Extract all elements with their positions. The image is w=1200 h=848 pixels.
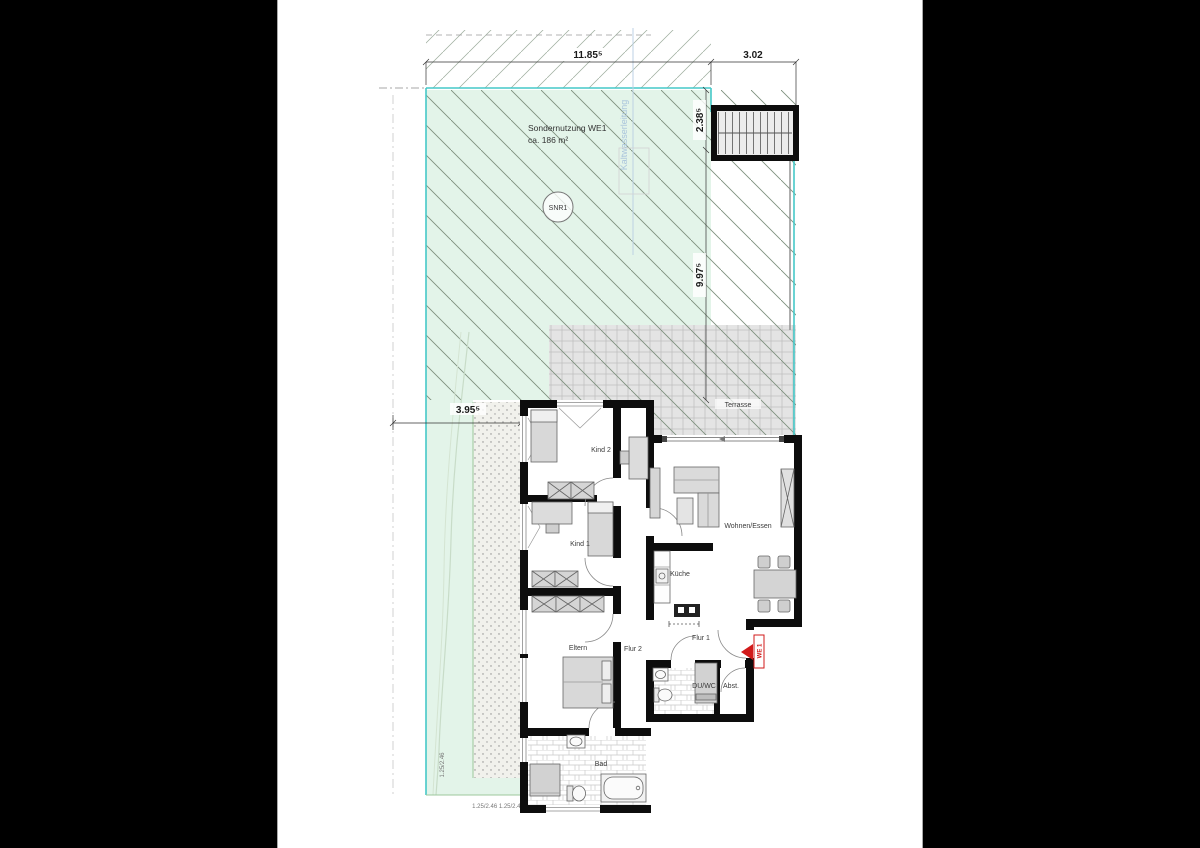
window-note-vertical: 1.25/2.46 xyxy=(440,752,446,778)
exterior-stairs xyxy=(714,108,796,158)
label-flur2: Flur 2 xyxy=(624,646,642,653)
terrasse-label: Terrasse xyxy=(725,402,752,409)
label-bad: Bad xyxy=(595,761,608,768)
window-bad-left xyxy=(520,738,528,762)
label-flur1: Flur 1 xyxy=(692,635,710,642)
label-duwc: DU/WC xyxy=(692,683,716,690)
dim-right-lower: 9.97⁵ xyxy=(695,263,706,287)
viewer-canvas: Kaltwasserleitung SNR1 Sondernutzung WE1… xyxy=(0,0,1200,848)
window-eltern-left-1 xyxy=(520,610,528,654)
snr-label: SNR1 xyxy=(549,205,568,212)
label-wohnen: Wohnen/Essen xyxy=(724,523,771,530)
plan-page: Kaltwasserleitung SNR1 Sondernutzung WE1… xyxy=(277,0,923,848)
label-kind2: Kind 2 xyxy=(591,447,611,454)
label-eltern: Eltern xyxy=(569,645,587,652)
waterline-label: Kaltwasserleitung xyxy=(619,100,629,171)
label-kueche: Küche xyxy=(670,571,690,578)
dim-left: 3.95⁵ xyxy=(456,405,480,416)
unit-marker-label: WE 1 xyxy=(758,643,764,658)
gravel-dots xyxy=(473,402,521,778)
special-use-line1: Sondernutzung WE1 xyxy=(528,123,607,133)
apartment-we1: WE 1 Kind 2 Kind 1 Eltern Flur 2 Flur 1 … xyxy=(520,400,802,813)
lawn-bottom xyxy=(426,778,521,795)
floor-plan-drawing: Kaltwasserleitung SNR1 Sondernutzung WE1… xyxy=(278,0,924,848)
snr-badge: SNR1 xyxy=(543,192,573,222)
label-kind1: Kind 1 xyxy=(570,541,590,548)
terrace-slider-door xyxy=(662,435,784,443)
dim-top-right: 3.02 xyxy=(743,50,763,61)
window-bad-bottom xyxy=(546,805,600,813)
dim-top-left: 11.85⁵ xyxy=(573,50,602,61)
window-note-bottom: 1.25/2.46 1.25/2.46 xyxy=(472,804,524,810)
window-eltern-left-2 xyxy=(520,658,528,702)
special-use-line2: ca. 186 m² xyxy=(528,135,568,145)
label-abst: Abst. xyxy=(723,683,739,690)
dim-right-upper: 2.38⁵ xyxy=(695,108,706,132)
